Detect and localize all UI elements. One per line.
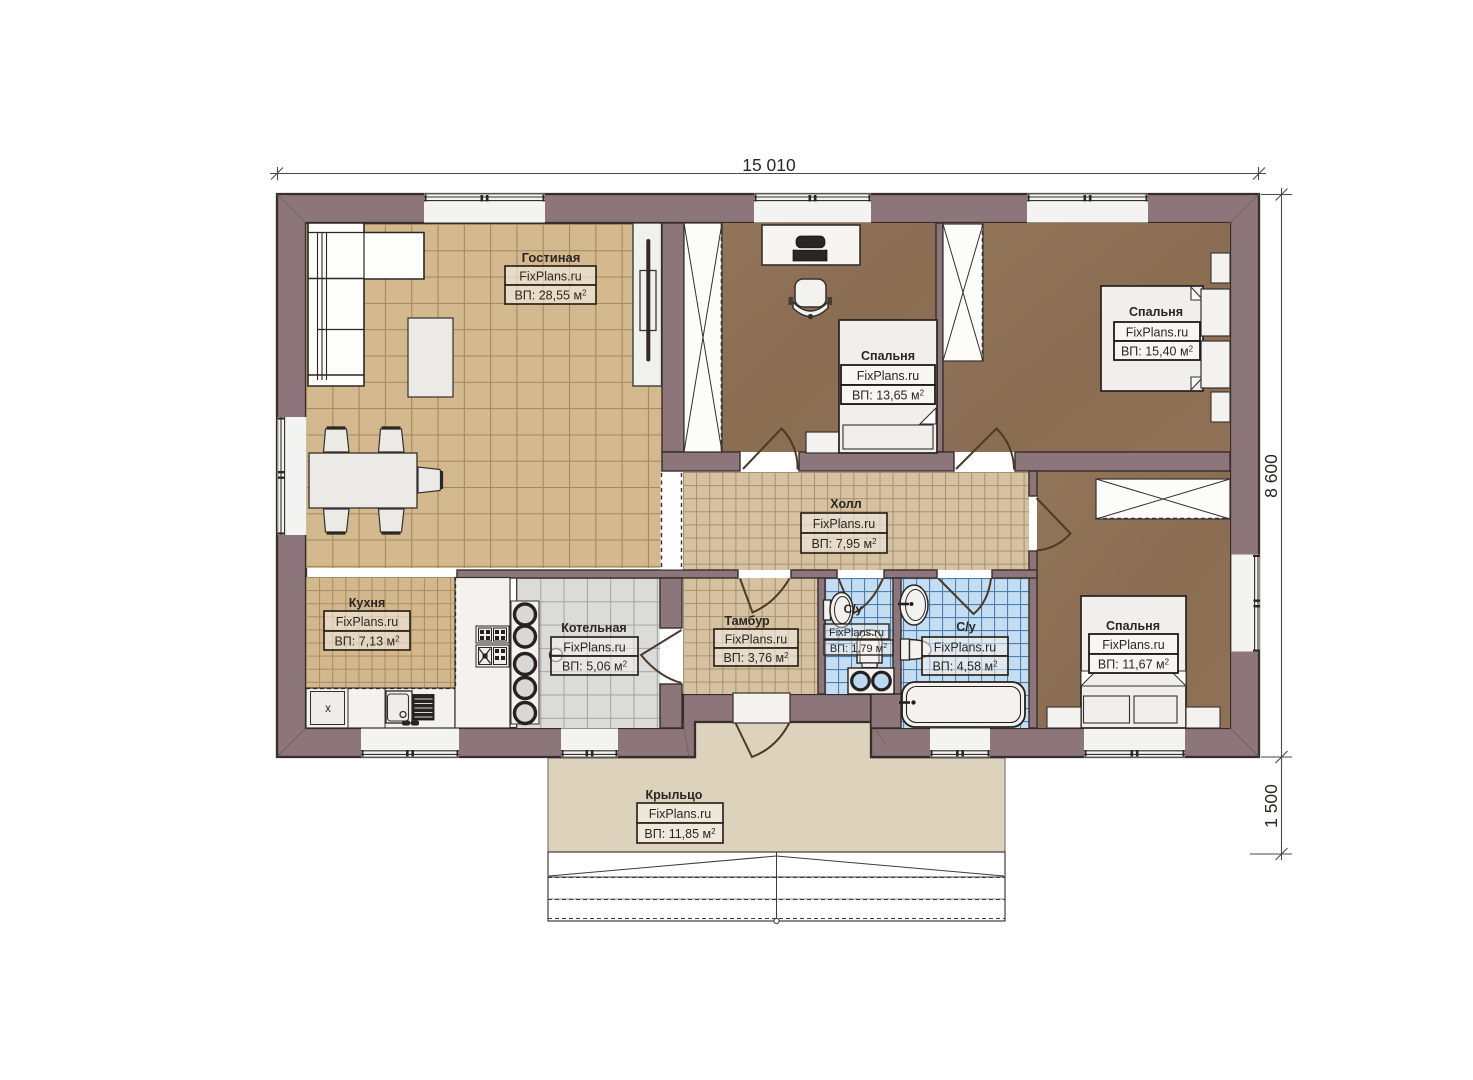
- svg-text:FixPlans.ru: FixPlans.ru: [857, 369, 920, 383]
- svg-text:Спальня: Спальня: [1106, 619, 1160, 633]
- svg-text:С/у: С/у: [956, 620, 976, 634]
- svg-text:FixPlans.ru: FixPlans.ru: [813, 517, 876, 531]
- svg-text:ВП: 1,79 м2: ВП: 1,79 м2: [830, 643, 887, 655]
- svg-text:ВП: 3,76 м2: ВП: 3,76 м2: [723, 651, 789, 665]
- svg-text:FixPlans.ru: FixPlans.ru: [649, 807, 712, 821]
- svg-text:FixPlans.ru: FixPlans.ru: [934, 641, 997, 655]
- svg-text:Тамбур: Тамбур: [724, 614, 770, 628]
- svg-text:Спальня: Спальня: [1129, 305, 1183, 319]
- svg-text:ВП: 4,58 м2: ВП: 4,58 м2: [932, 660, 998, 674]
- svg-text:ВП: 15,40 м2: ВП: 15,40 м2: [1121, 345, 1194, 359]
- svg-text:FixPlans.ru: FixPlans.ru: [1126, 326, 1189, 340]
- svg-text:ВП: 5,06 м2: ВП: 5,06 м2: [562, 660, 628, 674]
- svg-text:С/у: С/у: [844, 602, 863, 616]
- svg-text:Холл: Холл: [830, 497, 861, 511]
- svg-text:8 600: 8 600: [1261, 454, 1281, 498]
- svg-text:Кухня: Кухня: [349, 596, 386, 610]
- svg-text:FixPlans.ru: FixPlans.ru: [519, 270, 582, 284]
- svg-text:ВП: 13,65 м2: ВП: 13,65 м2: [852, 389, 925, 403]
- svg-text:ВП: 7,95 м2: ВП: 7,95 м2: [811, 537, 877, 551]
- svg-text:ВП: 11,85 м2: ВП: 11,85 м2: [644, 827, 716, 841]
- svg-text:Крыльцо: Крыльцо: [646, 788, 703, 802]
- svg-text:ВП: 11,67 м2: ВП: 11,67 м2: [1098, 658, 1170, 672]
- svg-text:FixPlans.ru: FixPlans.ru: [829, 627, 884, 639]
- svg-text:Спальня: Спальня: [861, 349, 915, 363]
- svg-text:x: x: [325, 703, 331, 715]
- svg-text:FixPlans.ru: FixPlans.ru: [725, 633, 788, 647]
- svg-text:Гостиная: Гостиная: [522, 250, 581, 265]
- svg-text:FixPlans.ru: FixPlans.ru: [336, 615, 399, 629]
- svg-text:ВП: 7,13 м2: ВП: 7,13 м2: [334, 635, 400, 649]
- svg-text:ВП: 28,55 м2: ВП: 28,55 м2: [514, 289, 587, 303]
- svg-text:15 010: 15 010: [742, 155, 796, 175]
- svg-text:Котельная: Котельная: [561, 621, 626, 635]
- svg-text:FixPlans.ru: FixPlans.ru: [563, 641, 626, 655]
- svg-text:1 500: 1 500: [1261, 784, 1281, 828]
- svg-text:FixPlans.ru: FixPlans.ru: [1102, 638, 1165, 652]
